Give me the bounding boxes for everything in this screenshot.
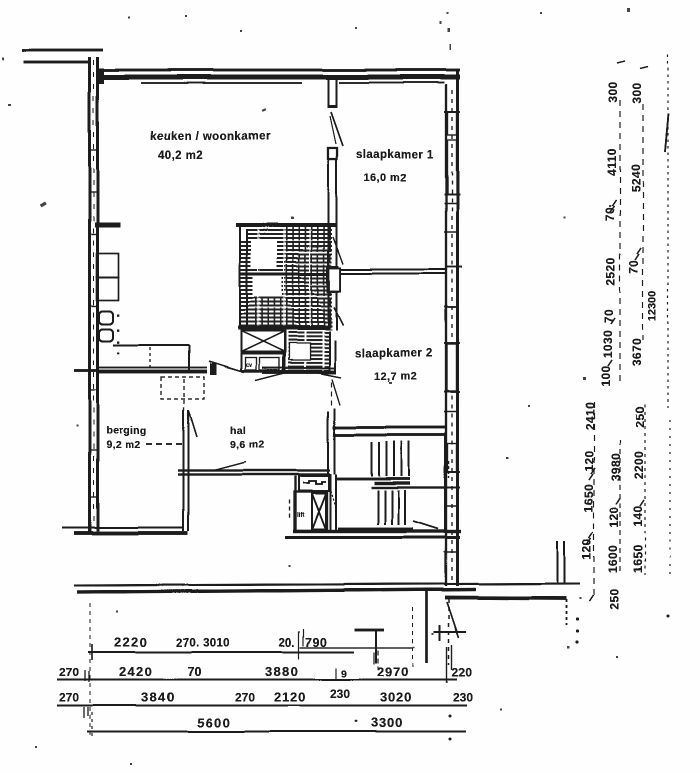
svg-text:270: 270 [59,665,79,679]
svg-text:slaapkamer 1: slaapkamer 1 [356,149,434,161]
svg-text:70: 70 [603,207,617,221]
svg-text:120: 120 [607,506,621,527]
svg-text:lift: lift [297,513,304,519]
svg-text:1650: 1650 [582,484,596,512]
svg-text:40,2 m2: 40,2 m2 [158,150,203,162]
svg-text:230: 230 [453,691,473,705]
svg-text:2520: 2520 [604,258,618,286]
svg-text:cv: cv [246,363,253,369]
svg-text:3980: 3980 [609,453,623,481]
svg-text:70: 70 [627,260,641,274]
svg-text:berging: berging [106,425,147,437]
svg-text:300: 300 [630,82,644,103]
svg-text:keuken / woonkamer: keuken / woonkamer [150,131,270,143]
svg-text:slaapkamer 2: slaapkamer 2 [355,348,433,360]
svg-text:70: 70 [602,309,616,323]
svg-text:1600: 1600 [606,545,620,573]
svg-text:100: 100 [599,365,613,386]
svg-text:1650: 1650 [631,545,645,573]
svg-text:250: 250 [633,406,647,427]
svg-text:2200: 2200 [632,451,646,479]
svg-text:790: 790 [305,636,327,650]
svg-text:9: 9 [341,668,347,680]
svg-text:12,7 m2: 12,7 m2 [374,371,417,383]
svg-text:16,0 m2: 16,0 m2 [364,172,407,184]
svg-text:270: 270 [59,691,79,705]
svg-text:9,2 m2: 9,2 m2 [106,439,141,451]
svg-text:12300: 12300 [647,291,659,322]
svg-text:140: 140 [631,505,645,526]
svg-text:3670: 3670 [630,338,644,366]
svg-text:3020: 3020 [380,690,412,705]
svg-text:230: 230 [330,687,350,701]
svg-text:2120: 2120 [274,690,306,705]
svg-text:20.: 20. [279,638,295,650]
svg-text:2420: 2420 [119,664,153,679]
svg-text:4110: 4110 [605,148,619,176]
svg-text:2220: 2220 [114,635,148,650]
svg-text:250: 250 [608,588,622,609]
svg-text:220: 220 [452,666,472,680]
svg-text:300: 300 [606,81,620,102]
svg-text:2970: 2970 [377,664,409,679]
svg-text:1030: 1030 [601,330,615,358]
svg-text:70: 70 [187,665,201,679]
svg-text:2410: 2410 [583,402,597,430]
svg-text:270. 3010: 270. 3010 [176,638,230,650]
svg-text:9,6 m2: 9,6 m2 [230,439,265,451]
svg-text:3880: 3880 [265,664,299,679]
svg-text:5240: 5240 [629,164,643,192]
svg-text:270: 270 [235,691,255,705]
svg-text:120: 120 [580,538,594,559]
svg-text:3840: 3840 [141,690,175,705]
svg-text:5600: 5600 [197,715,231,730]
svg-text:3300: 3300 [371,715,403,730]
svg-text:hal: hal [230,425,246,437]
